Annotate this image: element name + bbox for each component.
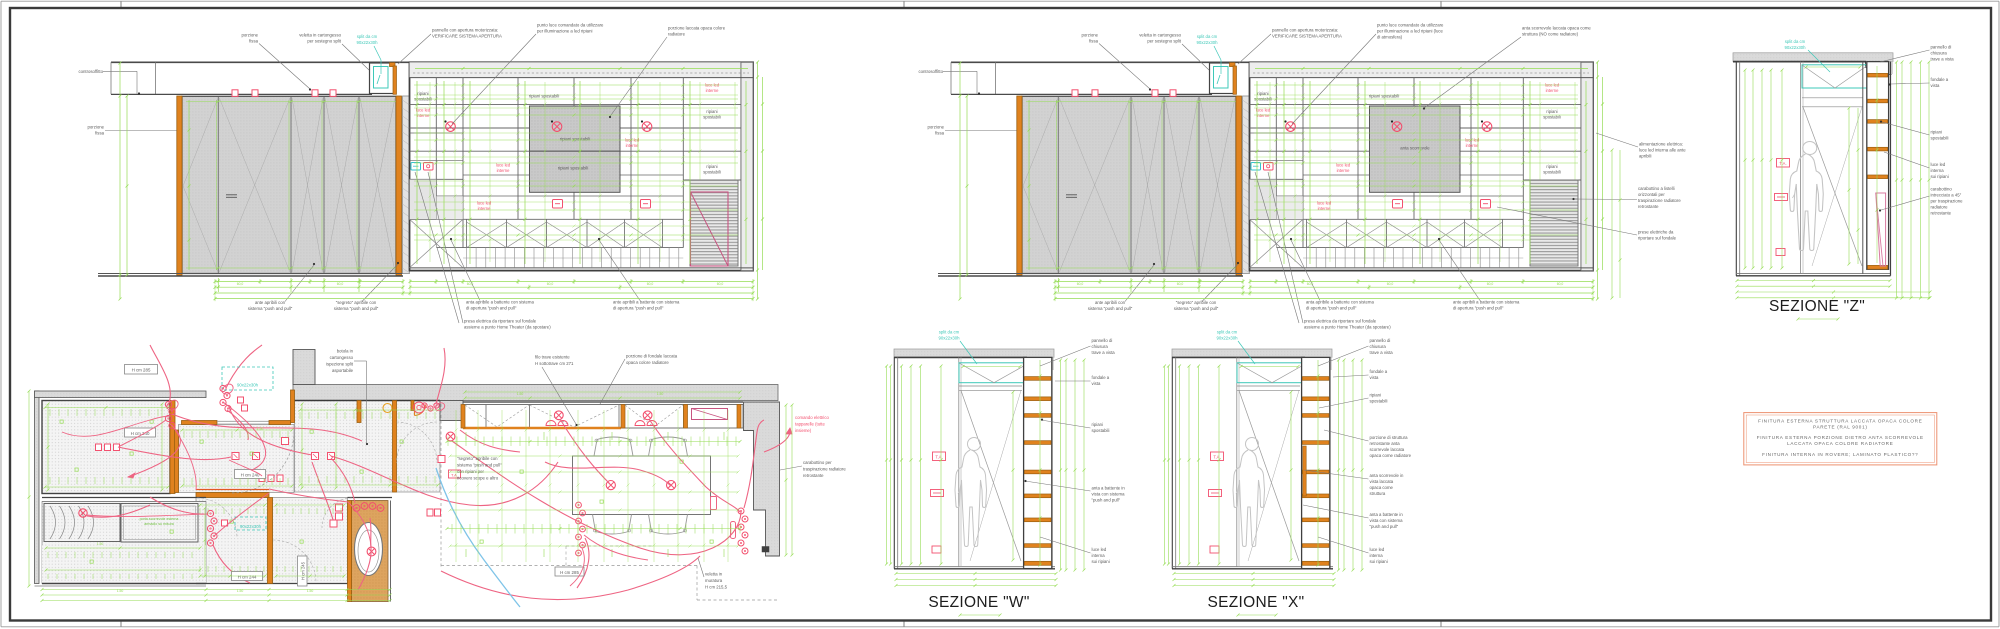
svg-text:assieme a punto Home Theater (: assieme a punto Home Theater (da spostar… [464, 325, 551, 330]
svg-text:asportabile: asportabile [332, 368, 354, 373]
svg-text:interna: interna [1931, 168, 1945, 173]
svg-text:sistema "push and pull": sistema "push and pull" [248, 306, 293, 311]
svg-text:90x22x30h: 90x22x30h [356, 40, 378, 45]
svg-text:1.50: 1.50 [357, 409, 364, 413]
svg-text:pannello di: pannello di [1370, 338, 1391, 343]
svg-text:1.50: 1.50 [97, 542, 104, 546]
svg-text:sistema "push and pull": sistema "push and pull" [457, 463, 502, 468]
svg-text:sui ripiani: sui ripiani [1092, 559, 1110, 564]
svg-text:60,0: 60,0 [467, 282, 474, 286]
svg-text:H cm 244: H cm 244 [238, 574, 257, 579]
svg-text:per illuminazione a led ripian: per illuminazione a led ripiani (luce [1377, 29, 1444, 34]
svg-text:cartongesso: cartongesso [330, 355, 354, 360]
svg-text:interne: interne [478, 206, 491, 211]
svg-text:60,0: 60,0 [1487, 282, 1494, 286]
svg-text:trave a vista: trave a vista [1092, 350, 1116, 355]
svg-text:di apertura "push and pull": di apertura "push and pull" [1453, 306, 1504, 311]
svg-text:H sottotrave cm 271: H sottotrave cm 271 [535, 361, 574, 366]
svg-text:carabottino a listelli: carabottino a listelli [1638, 186, 1675, 191]
svg-text:ripiani: ripiani [706, 109, 717, 114]
svg-text:interne: interne [1257, 113, 1270, 118]
svg-text:60,0: 60,0 [1557, 282, 1564, 286]
svg-text:veletta in cartongesso: veletta in cartongesso [1139, 33, 1181, 38]
svg-text:punto luce comandato da utiliz: punto luce comandato da utilizzare [1377, 23, 1444, 28]
svg-text:split da cm: split da cm [1197, 34, 1218, 39]
svg-text:"push and pull": "push and pull" [1092, 498, 1121, 503]
svg-text:vista: vista [1370, 375, 1379, 380]
svg-text:split da cm: split da cm [357, 34, 378, 39]
svg-text:fissa: fissa [249, 39, 258, 44]
svg-text:spostabili: spostabili [703, 170, 721, 175]
svg-text:fondale a: fondale a [1092, 375, 1110, 380]
svg-text:pannello con apertura motorizz: pannello con apertura motorizzata: [432, 28, 498, 33]
svg-text:ripiani: ripiani [706, 164, 717, 169]
svg-text:60,0: 60,0 [647, 282, 654, 286]
svg-text:1.50: 1.50 [257, 427, 264, 431]
svg-text:ripiani: ripiani [1931, 130, 1943, 135]
svg-text:spostabili: spostabili [703, 115, 721, 120]
svg-text:interne: interne [497, 168, 510, 173]
svg-text:spostabili: spostabili [1370, 399, 1388, 404]
svg-text:1.50: 1.50 [117, 589, 124, 593]
svg-text:riportare sul fondale: riportare sul fondale [1638, 236, 1677, 241]
svg-text:di apertura "push and pull": di apertura "push and pull" [466, 306, 517, 311]
svg-text:porzione di fondale laccata: porzione di fondale laccata [626, 354, 678, 359]
svg-text:interne: interne [1337, 168, 1350, 173]
svg-text:comando elettrico: comando elettrico [795, 415, 830, 420]
svg-text:60,0: 60,0 [547, 282, 554, 286]
svg-text:opaca come radiatore: opaca come radiatore [1370, 453, 1412, 458]
svg-text:di atmosfera): di atmosfera) [1377, 35, 1403, 40]
svg-text:ripiani: ripiani [1257, 91, 1268, 96]
svg-text:sui ripiani: sui ripiani [1370, 559, 1388, 564]
svg-text:luce led interna alle ante: luce led interna alle ante [1639, 148, 1686, 153]
svg-text:tapparelle (tutte: tapparelle (tutte [795, 422, 825, 427]
svg-text:1.50: 1.50 [237, 589, 244, 593]
svg-text:muratura: muratura [705, 578, 723, 583]
svg-text:luce led: luce led [1931, 162, 1946, 167]
svg-text:FINITURA INTERNA IN ROVERE;: FINITURA INTERNA IN ROVERE; LAMINATO PLA… [1762, 452, 1918, 457]
svg-text:trave a vista: trave a vista [1370, 350, 1394, 355]
svg-text:luce led: luce led [1370, 547, 1385, 552]
svg-text:H cm 285: H cm 285 [132, 368, 151, 373]
svg-text:presa elettrica da riportare s: presa elettrica da riportare sul fondale [464, 319, 537, 324]
svg-text:H cm 285: H cm 285 [560, 570, 579, 575]
svg-text:anta apribile a battente con s: anta apribile a battente con sistema [1306, 300, 1374, 305]
svg-text:SEZIONE "W": SEZIONE "W" [928, 594, 1029, 611]
svg-text:porzione: porzione [928, 125, 945, 130]
svg-text:LACCATA OPACA COLORE RADIAT: LACCATA OPACA COLORE RADIATORE [1787, 441, 1893, 446]
svg-text:retrostante: retrostante [1638, 204, 1659, 209]
svg-text:"segreto" apribile con: "segreto" apribile con [457, 456, 498, 461]
svg-text:di apertura "push and pull": di apertura "push and pull" [613, 306, 664, 311]
svg-text:traspirazione radiatore: traspirazione radiatore [803, 467, 846, 472]
svg-text:"push and pull": "push and pull" [1370, 524, 1399, 529]
svg-text:vista con sistema: vista con sistema [1092, 492, 1126, 497]
svg-text:interne: interne [706, 88, 719, 93]
svg-text:1.50: 1.50 [517, 392, 524, 396]
svg-text:FINITURA ESTERNA PORZIONE D: FINITURA ESTERNA PORZIONE DIETRO ANTA SC… [1757, 435, 1924, 440]
svg-text:prese elettriche da: prese elettriche da [1638, 230, 1674, 235]
svg-text:filo trave esistente: filo trave esistente [535, 355, 570, 360]
svg-text:sistema "push and pull": sistema "push and pull" [334, 306, 379, 311]
svg-text:90x22x30h: 90x22x30h [240, 524, 262, 529]
svg-text:ripiani spostabili: ripiani spostabili [1369, 94, 1400, 99]
svg-text:vista laccata: vista laccata [1370, 479, 1394, 484]
svg-text:retrostante: retrostante [1931, 211, 1952, 216]
svg-text:90x22x30h: 90x22x30h [1784, 45, 1806, 50]
svg-text:retrostante: retrostante [803, 473, 824, 478]
svg-text:ripiani: ripiani [1546, 164, 1557, 169]
svg-text:orizzontali per: orizzontali per [1638, 192, 1665, 197]
svg-text:anta a battente in: anta a battente in [1092, 486, 1126, 491]
svg-text:botola in: botola in [337, 349, 354, 354]
svg-text:interne: interne [1318, 206, 1331, 211]
svg-text:90x22x30h: 90x22x30h [237, 383, 259, 388]
svg-text:insieme): insieme) [795, 428, 812, 433]
svg-text:60,0: 60,0 [337, 282, 344, 286]
svg-text:pannello di: pannello di [1931, 45, 1952, 50]
svg-text:ante apribili a battente con s: ante apribili a battente con sistema [613, 300, 680, 305]
svg-text:60,0: 60,0 [1077, 282, 1084, 286]
svg-text:vista con sistema: vista con sistema [1370, 518, 1404, 523]
svg-text:ante apribili con: ante apribili con [1095, 300, 1126, 305]
svg-text:vista: vista [1092, 381, 1101, 386]
svg-text:sui ripiani: sui ripiani [1931, 174, 1949, 179]
svg-text:per illuminazione a led ripian: per illuminazione a led ripiani [537, 29, 592, 34]
svg-text:60,0: 60,0 [1307, 282, 1314, 286]
svg-text:60,0: 60,0 [1177, 282, 1184, 286]
svg-text:porta scorrevole esterna: porta scorrevole esterna [140, 517, 179, 521]
svg-text:pannello con apertura motorizz: pannello con apertura motorizzata: [1272, 28, 1338, 33]
svg-text:60,0: 60,0 [237, 282, 244, 286]
svg-text:PARETE (RAL 9001): PARETE (RAL 9001) [1813, 425, 1868, 430]
svg-text:di apertura "push and pull": di apertura "push and pull" [1306, 306, 1357, 311]
svg-text:anta apribile a battente con s: anta apribile a battente con sistema [466, 300, 534, 305]
svg-text:luce led: luce led [477, 201, 492, 206]
svg-text:H cm 215,5: H cm 215,5 [705, 585, 728, 590]
svg-text:chiusura: chiusura [1092, 344, 1109, 349]
svg-text:controsoffitto: controsoffitto [78, 69, 103, 74]
svg-text:SEZIONE "X": SEZIONE "X" [1208, 594, 1305, 611]
svg-text:presa elettrica da riportare s: presa elettrica da riportare sul fondale [1304, 319, 1377, 324]
svg-text:retrostante anta: retrostante anta [1370, 441, 1401, 446]
svg-text:1.50: 1.50 [307, 589, 314, 593]
svg-text:spostabili: spostabili [1543, 170, 1561, 175]
svg-text:T.A.: T.A. [935, 455, 942, 460]
svg-text:VERIFICARE SISTEMA APERTURA: VERIFICARE SISTEMA APERTURA [432, 34, 502, 39]
svg-text:60,0: 60,0 [717, 282, 724, 286]
svg-text:pannello di: pannello di [1092, 338, 1113, 343]
svg-text:ripiani spostabili: ripiani spostabili [529, 94, 560, 99]
svg-text:VERIFICARE SISTEMA APERTURA: VERIFICARE SISTEMA APERTURA [1272, 34, 1342, 39]
svg-text:90x22x30h: 90x22x30h [1216, 336, 1238, 341]
svg-text:split da cm: split da cm [939, 330, 960, 335]
svg-text:veletta in cartongesso: veletta in cartongesso [299, 33, 341, 38]
svg-text:split da cm: split da cm [1785, 39, 1806, 44]
svg-text:90x22x30h: 90x22x30h [1196, 40, 1218, 45]
svg-text:luce led: luce led [1092, 547, 1107, 552]
svg-text:trave a vista: trave a vista [1931, 57, 1955, 62]
svg-text:interna: interna [1370, 553, 1384, 558]
svg-text:carabottino: carabottino [1931, 187, 1953, 192]
svg-text:carabottino per: carabottino per [803, 460, 832, 465]
svg-text:fissa: fissa [935, 131, 944, 136]
svg-text:intrecciato a 45°: intrecciato a 45° [1931, 193, 1962, 198]
svg-text:"segreto" apribile con: "segreto" apribile con [336, 300, 377, 305]
svg-text:anta scorrevole: anta scorrevole [1400, 146, 1430, 151]
svg-text:interne: interne [1546, 88, 1559, 93]
svg-text:opaca come: opaca come [1370, 485, 1394, 490]
svg-text:porzione: porzione [242, 33, 259, 38]
svg-text:FINITURA ESTERNA STRUTTURA: FINITURA ESTERNA STRUTTURA LACCATA OPACA… [1758, 419, 1922, 424]
svg-text:controsoffitto: controsoffitto [918, 69, 943, 74]
svg-text:ante apribili con: ante apribili con [255, 300, 286, 305]
svg-text:chiusura: chiusura [1931, 51, 1948, 56]
svg-text:per traspirazione: per traspirazione [1931, 199, 1964, 204]
svg-text:opaca colore radiatore: opaca colore radiatore [626, 360, 669, 365]
svg-text:per sostegno split: per sostegno split [1147, 39, 1181, 44]
svg-text:90x22x30h: 90x22x30h [938, 336, 960, 341]
svg-text:anta a battente in: anta a battente in [1370, 512, 1404, 517]
svg-text:spostabili: spostabili [1931, 136, 1949, 141]
svg-text:punto luce comandato da utiliz: punto luce comandato da utilizzare [537, 23, 604, 28]
svg-text:anta scorrevole in: anta scorrevole in [1370, 473, 1405, 478]
svg-text:anta scorrevole laccata opaca: anta scorrevole laccata opaca come [1522, 26, 1591, 31]
svg-text:sistema "push and pull": sistema "push and pull" [1174, 306, 1219, 311]
svg-text:60,0: 60,0 [1387, 282, 1394, 286]
svg-text:ripiani: ripiani [417, 91, 428, 96]
svg-text:interne: interne [417, 113, 430, 118]
svg-text:apribili: apribili [1639, 154, 1651, 159]
svg-text:T.A.: T.A. [1779, 161, 1786, 166]
svg-text:fondale a: fondale a [1931, 77, 1949, 82]
svg-text:1.50: 1.50 [657, 392, 664, 396]
svg-text:chiusura: chiusura [1370, 344, 1387, 349]
svg-text:ripiani spostabili: ripiani spostabili [558, 166, 589, 171]
svg-text:luce led: luce led [1317, 201, 1332, 206]
svg-text:split da cm: split da cm [1217, 330, 1238, 335]
svg-text:con ripiani per: con ripiani per [457, 469, 485, 474]
svg-text:ante apribili a battente con s: ante apribili a battente con sistema [1453, 300, 1520, 305]
svg-text:interna: interna [1092, 553, 1106, 558]
svg-text:traspirazione radiatore: traspirazione radiatore [1638, 198, 1681, 203]
svg-text:fissa: fissa [95, 131, 104, 136]
svg-text:ripiani: ripiani [1092, 422, 1104, 427]
svg-text:porzione: porzione [88, 125, 105, 130]
svg-text:fondale a: fondale a [1370, 369, 1388, 374]
svg-text:ripiani: ripiani [1370, 393, 1382, 398]
svg-text:radiatore: radiatore [1931, 205, 1949, 210]
svg-text:struttura: struttura [1370, 491, 1386, 496]
svg-text:struttura (NO come radiatore): struttura (NO come radiatore) [1522, 32, 1579, 37]
svg-text:porzione di struttura: porzione di struttura [1370, 435, 1409, 440]
svg-text:fissa: fissa [1089, 39, 1098, 44]
svg-text:porzione laccata opaca colore: porzione laccata opaca colore [668, 26, 726, 31]
svg-text:"segreto" apribile con: "segreto" apribile con [1176, 300, 1217, 305]
svg-text:ispezione split: ispezione split [326, 362, 354, 367]
svg-text:per sostegno split: per sostegno split [307, 39, 341, 44]
svg-text:interne: interne [626, 143, 639, 148]
svg-text:T.A.: T.A. [1213, 455, 1220, 460]
svg-text:ripiani: ripiani [1546, 109, 1557, 114]
svg-text:spostabili: spostabili [1092, 428, 1110, 433]
svg-text:SEZIONE "Z": SEZIONE "Z" [1769, 298, 1865, 315]
svg-text:alimentazione elettrica:: alimentazione elettrica: [1639, 142, 1683, 147]
svg-text:porzione: porzione [1082, 33, 1099, 38]
svg-text:assieme a punto Home Theater (: assieme a punto Home Theater (da spostar… [1304, 325, 1391, 330]
svg-text:scorrevole laccata: scorrevole laccata [1370, 447, 1405, 452]
svg-text:vista: vista [1931, 83, 1940, 88]
svg-text:luce led: luce led [1256, 108, 1271, 113]
svg-text:spostabili: spostabili [1543, 115, 1561, 120]
svg-text:luce led: luce led [416, 108, 431, 113]
svg-text:interne: interne [1466, 143, 1479, 148]
svg-text:armadio su misura: armadio su misura [144, 522, 174, 526]
svg-text:radiatore: radiatore [668, 32, 686, 37]
svg-text:sistema "push and pull": sistema "push and pull" [1088, 306, 1133, 311]
svg-text:veletta in: veletta in [705, 572, 723, 577]
